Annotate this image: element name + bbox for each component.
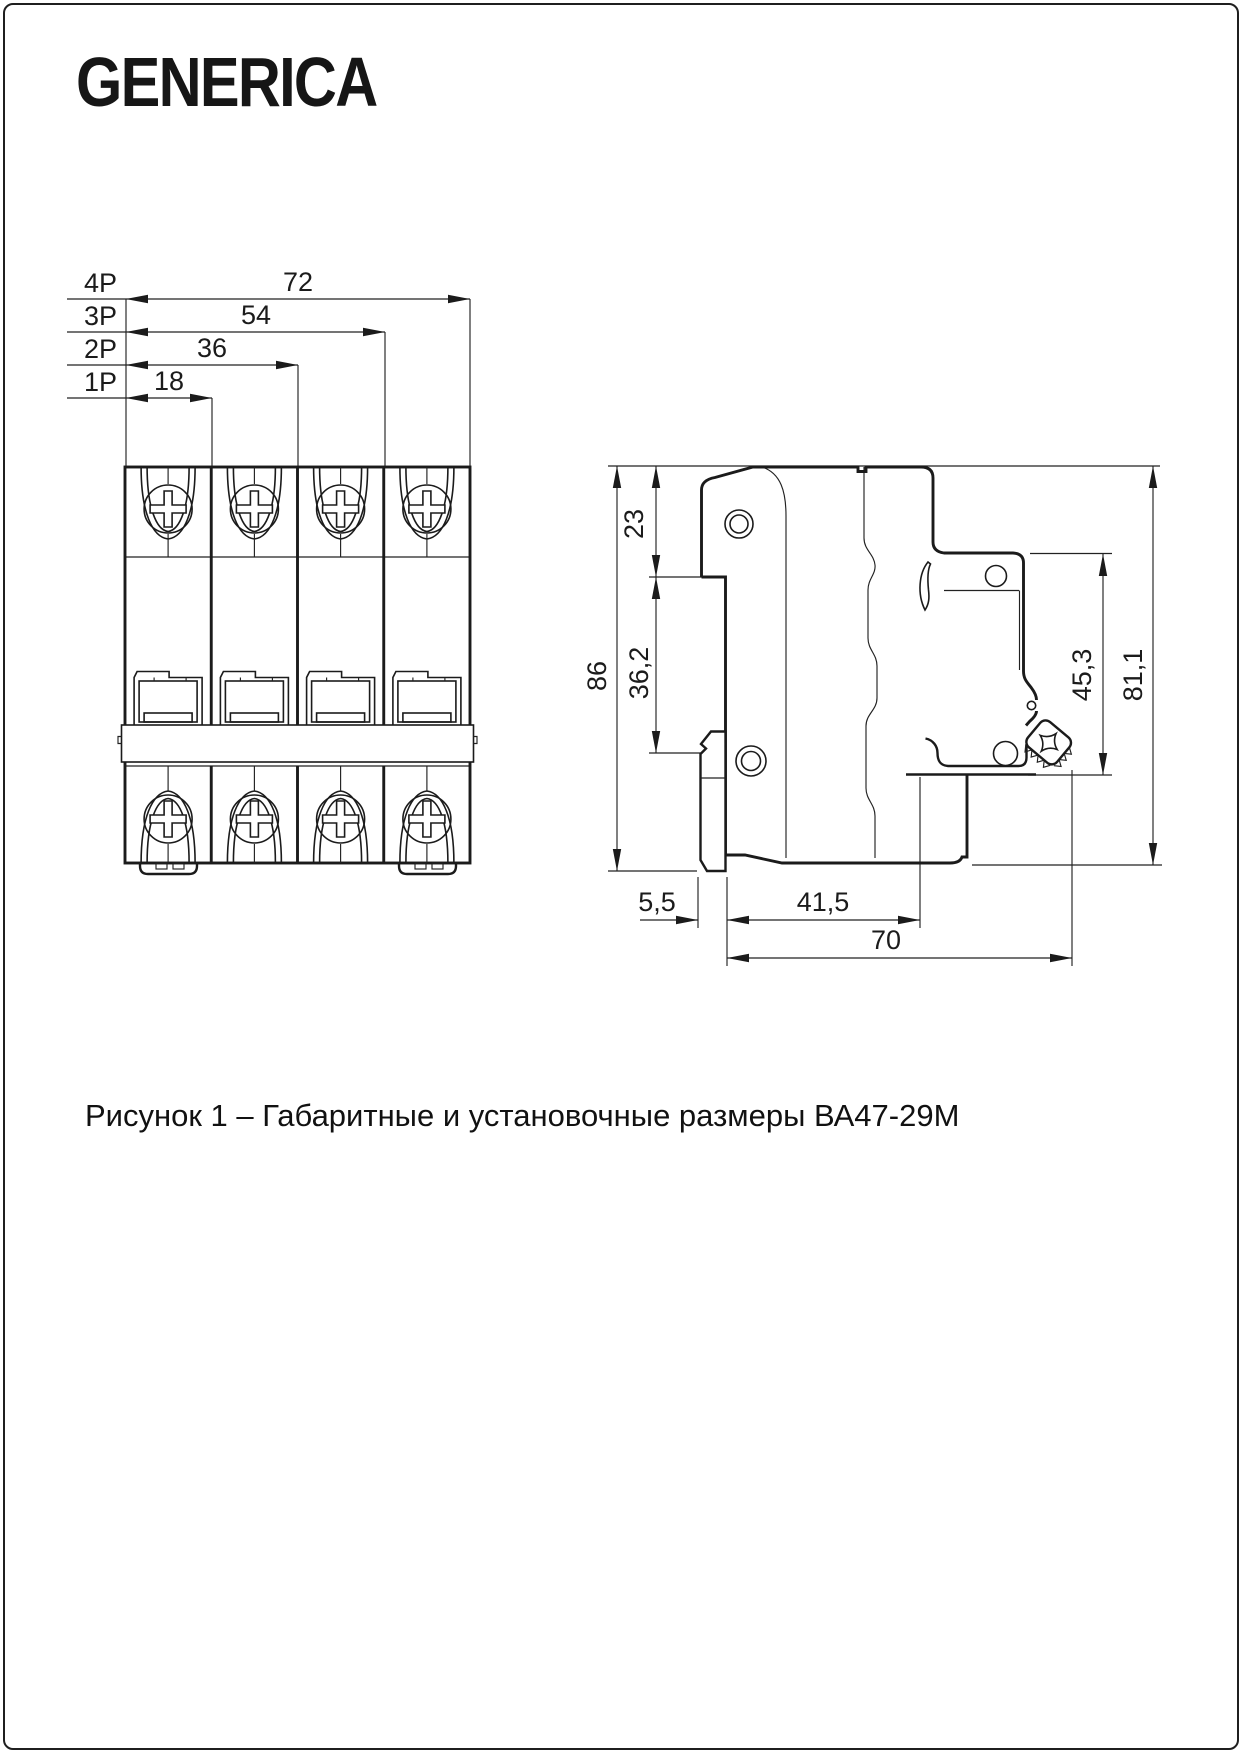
handle-tie-bar bbox=[118, 725, 477, 762]
side-terminal-screw-top bbox=[725, 510, 753, 538]
pole-value-2p: 36 bbox=[197, 333, 227, 363]
pole-value-1p: 18 bbox=[154, 366, 184, 396]
pole-module-1 bbox=[134, 467, 202, 863]
side-view-extension-lines bbox=[608, 466, 1162, 966]
upper-flange-hole bbox=[986, 566, 1007, 587]
pole-label-1p: 1P bbox=[84, 367, 117, 397]
latch-pivot-hole bbox=[1027, 701, 1035, 709]
dim-45-3: 45,3 bbox=[1067, 649, 1097, 702]
mounting-foot-right bbox=[399, 863, 456, 874]
pole-label-4p: 4P bbox=[84, 268, 117, 298]
datasheet-page: GENERICA bbox=[0, 0, 1242, 1753]
figure-caption: Рисунок 1 – Габаритные и установочные ра… bbox=[85, 1098, 959, 1134]
din-rail-clip bbox=[701, 732, 726, 872]
pole-module-3 bbox=[307, 467, 375, 863]
lower-flange bbox=[926, 739, 1027, 767]
pole-module-4 bbox=[393, 467, 461, 863]
mounting-foot-left bbox=[140, 863, 197, 874]
pole-module-2 bbox=[220, 467, 288, 863]
front-view-dimensions: 4P 72 3P 54 2P 36 1P 18 bbox=[67, 267, 470, 467]
dim-81-1: 81,1 bbox=[1118, 649, 1148, 702]
dim-5-5: 5,5 bbox=[638, 887, 676, 917]
wire-clamp bbox=[1020, 718, 1079, 776]
pole-label-2p: 2P bbox=[84, 334, 117, 364]
dim-23: 23 bbox=[619, 509, 649, 539]
side-view-body bbox=[701, 467, 1079, 871]
lower-flange-hole bbox=[994, 742, 1018, 766]
dim-70: 70 bbox=[871, 925, 901, 955]
dim-36-2: 36,2 bbox=[624, 647, 654, 700]
front-view-body bbox=[118, 467, 477, 874]
side-terminal-screw-bottom bbox=[736, 746, 766, 776]
front-view: 4P 72 3P 54 2P 36 1P 18 bbox=[67, 267, 477, 874]
pole-label-3p: 3P bbox=[84, 301, 117, 331]
pole-value-3p: 54 bbox=[241, 300, 271, 330]
dim-41-5: 41,5 bbox=[797, 887, 850, 917]
side-view: 86 23 36,2 45,3 81,1 bbox=[582, 466, 1162, 966]
upper-flange bbox=[920, 562, 1007, 610]
flange-slot bbox=[920, 562, 931, 610]
dimension-drawing: 4P 72 3P 54 2P 36 1P 18 bbox=[0, 0, 1242, 1753]
pole-value-4p: 72 bbox=[283, 267, 313, 297]
dim-86: 86 bbox=[582, 661, 612, 691]
